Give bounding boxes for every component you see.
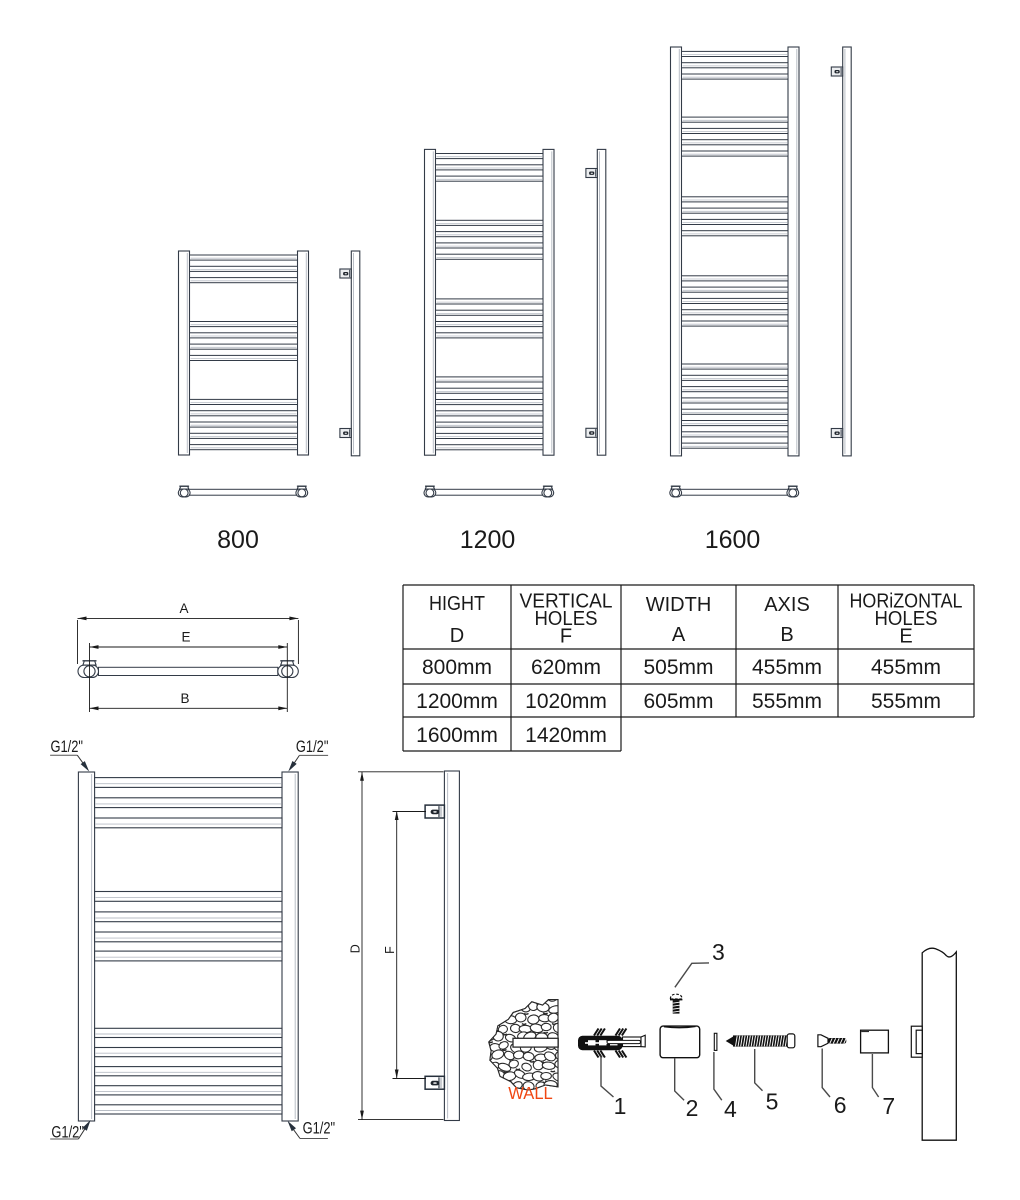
- svg-text:HIGHT: HIGHT: [429, 593, 485, 615]
- svg-text:1200mm: 1200mm: [416, 690, 498, 713]
- svg-text:WIDTH: WIDTH: [646, 594, 712, 616]
- svg-text:1200: 1200: [460, 526, 516, 554]
- svg-text:B: B: [780, 624, 793, 646]
- svg-text:1: 1: [614, 1093, 627, 1119]
- svg-text:E: E: [899, 626, 912, 648]
- svg-text:F: F: [383, 946, 397, 954]
- svg-text:2: 2: [686, 1095, 699, 1121]
- svg-text:620mm: 620mm: [531, 656, 601, 679]
- svg-text:6: 6: [834, 1092, 847, 1118]
- svg-text:E: E: [181, 630, 190, 645]
- svg-text:1020mm: 1020mm: [525, 690, 607, 713]
- svg-text:800mm: 800mm: [422, 656, 492, 679]
- svg-text:F: F: [560, 626, 572, 648]
- svg-text:B: B: [180, 691, 189, 706]
- svg-text:WALL: WALL: [508, 1083, 553, 1103]
- svg-text:A: A: [672, 624, 686, 646]
- svg-text:455mm: 455mm: [871, 656, 941, 679]
- svg-text:1420mm: 1420mm: [525, 724, 607, 747]
- svg-text:605mm: 605mm: [643, 690, 713, 713]
- svg-text:4: 4: [724, 1096, 737, 1122]
- svg-text:G1/2": G1/2": [51, 737, 84, 756]
- svg-text:D: D: [450, 625, 464, 647]
- svg-text:5: 5: [766, 1089, 779, 1115]
- svg-text:455mm: 455mm: [752, 656, 822, 679]
- svg-text:3: 3: [712, 939, 725, 965]
- svg-text:7: 7: [882, 1093, 895, 1119]
- svg-text:1600: 1600: [705, 526, 761, 554]
- svg-text:555mm: 555mm: [871, 690, 941, 713]
- svg-text:A: A: [179, 601, 188, 616]
- svg-text:G1/2": G1/2": [303, 1119, 336, 1138]
- svg-text:AXIS: AXIS: [764, 594, 810, 616]
- svg-text:800: 800: [217, 526, 259, 554]
- svg-text:555mm: 555mm: [752, 690, 822, 713]
- svg-text:D: D: [348, 944, 362, 953]
- svg-text:G1/2": G1/2": [296, 737, 329, 756]
- svg-text:1600mm: 1600mm: [416, 724, 498, 747]
- svg-text:505mm: 505mm: [643, 656, 713, 679]
